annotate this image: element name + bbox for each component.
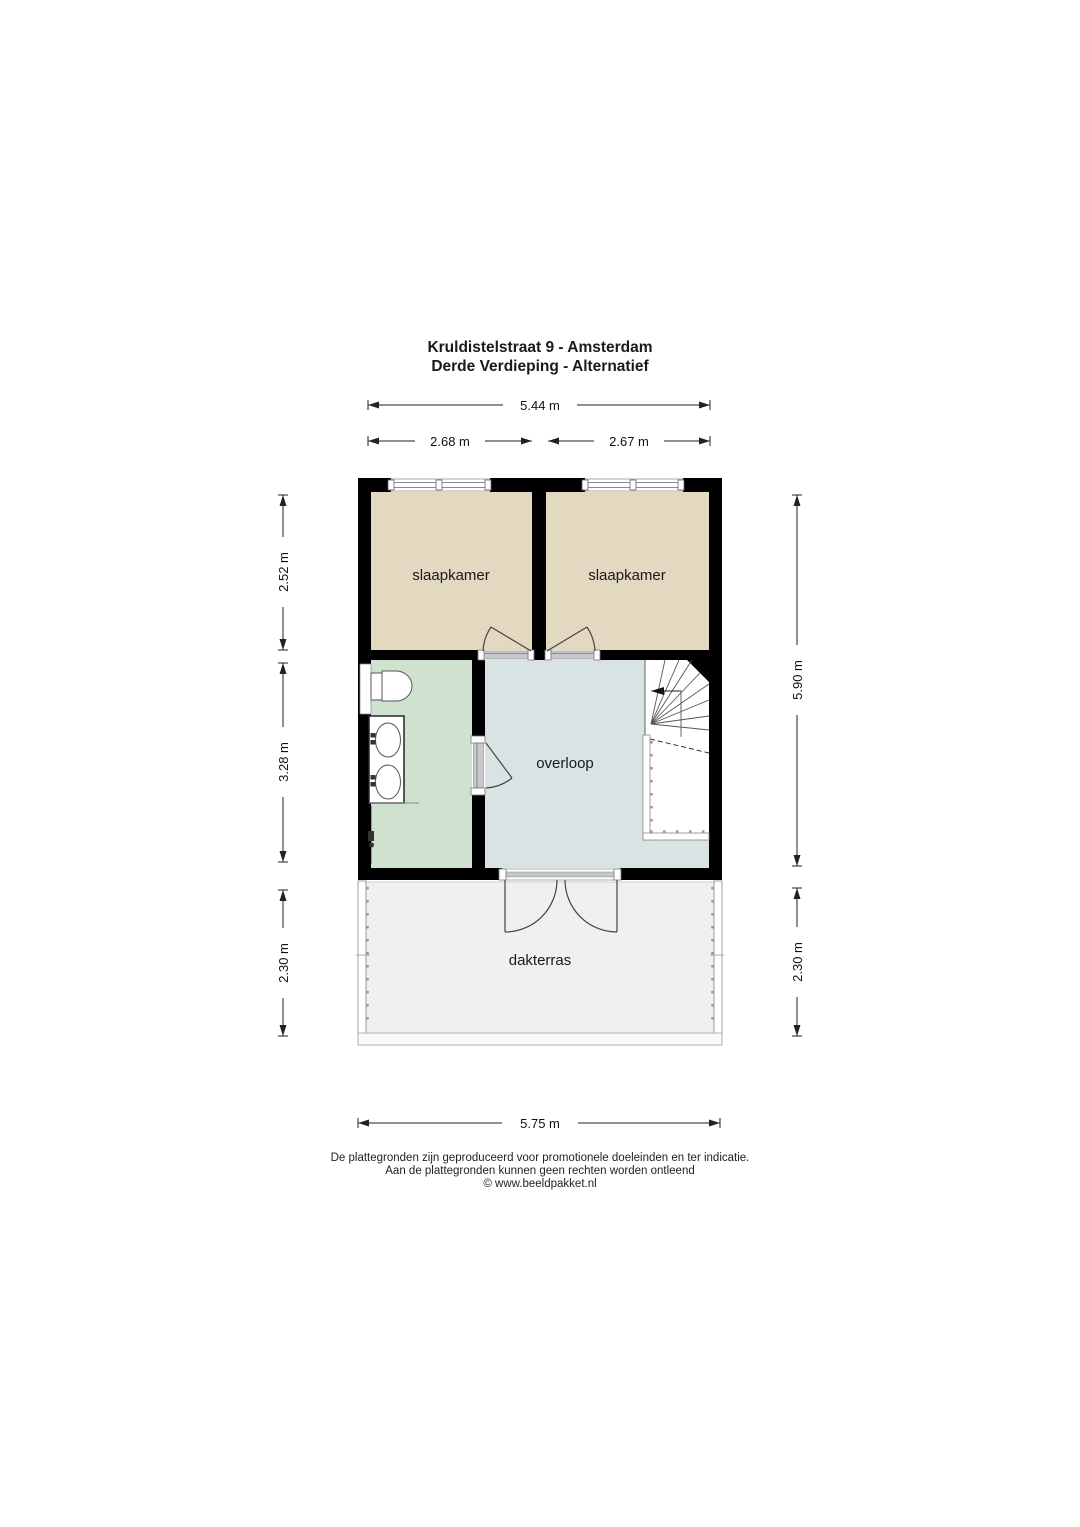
dim-top-right-label: 2.67 m [609, 434, 649, 449]
wall-bathroom-seg2 [472, 794, 485, 868]
wall-top-seg2 [490, 478, 585, 492]
window-bedroom-left [388, 479, 491, 491]
disclaimer: De plattegronden zijn geproduceerd voor … [331, 1152, 750, 1190]
dimension-right-upper: 5.90 m [788, 495, 805, 866]
dimension-top-left-room: 2.68 m [368, 432, 532, 449]
terrace-railing-right [714, 881, 722, 1033]
room-label-bedroom-left: slaapkamer [412, 567, 490, 584]
dimension-left-bedrooms: 2.52 m [274, 495, 291, 650]
room-label-bedroom-right: slaapkamer [588, 567, 666, 584]
floorplan-canvas: Kruldistelstraat 9 - Amsterdam Derde Ver… [0, 0, 1080, 1527]
wall-right [709, 478, 722, 880]
toilet-cistern-niche [360, 664, 371, 714]
floorplan-page: Kruldistelstraat 9 - Amsterdam Derde Ver… [0, 0, 1080, 1527]
terrace-railing-bottom [358, 1033, 722, 1045]
toilet-icon [371, 671, 412, 701]
dimension-top-right-room: 2.67 m [548, 432, 710, 449]
dim-left-middle-label: 3.28 m [276, 742, 291, 782]
dimension-right-terrace: 2.30 m [788, 888, 805, 1036]
plan-title-line1: Kruldistelstraat 9 - Amsterdam [427, 339, 652, 356]
dim-right-terrace-label: 2.30 m [790, 942, 805, 982]
dimension-left-terrace: 2.30 m [274, 890, 291, 1036]
disclaimer-line1: De plattegronden zijn geproduceerd voor … [331, 1152, 750, 1164]
wall-top-seg1 [358, 478, 391, 492]
dim-left-bedrooms-label: 2.52 m [276, 552, 291, 592]
wall-between-bedrooms [532, 492, 546, 660]
dim-top-total-label: 5.44 m [520, 398, 560, 413]
wall-bottom-seg1 [358, 868, 502, 880]
wall-mid-seg3 [597, 650, 709, 660]
stairwell-floor [645, 660, 709, 835]
dim-bottom-total-label: 5.75 m [520, 1116, 560, 1131]
room-label-landing: overloop [536, 755, 594, 772]
wall-bathroom-seg1 [472, 660, 485, 737]
dimension-top-total: 5.44 m [368, 396, 710, 413]
dimension-bottom-total: 5.75 m [358, 1114, 720, 1131]
wall-mid-seg1 [371, 650, 480, 660]
room-label-terrace: dakterras [509, 952, 572, 969]
double-washbasin-icon [369, 716, 404, 803]
plan-title-line2: Derde Verdieping - Alternatief [431, 358, 649, 375]
disclaimer-line2: Aan de plattegronden kunnen geen rechten… [385, 1165, 694, 1177]
disclaimer-copyright: © www.beeldpakket.nl [483, 1178, 596, 1190]
wall-top-seg3 [683, 478, 722, 492]
dim-top-left-label: 2.68 m [430, 434, 470, 449]
dimension-left-middle: 3.28 m [274, 663, 291, 862]
wall-bottom-seg2 [620, 868, 722, 880]
dim-right-upper-label: 5.90 m [790, 660, 805, 700]
terrace-railing-left [358, 881, 366, 1033]
dim-left-terrace-label: 2.30 m [276, 943, 291, 983]
plan-title: Kruldistelstraat 9 - Amsterdam Derde Ver… [427, 339, 652, 375]
window-bedroom-right [582, 479, 684, 491]
